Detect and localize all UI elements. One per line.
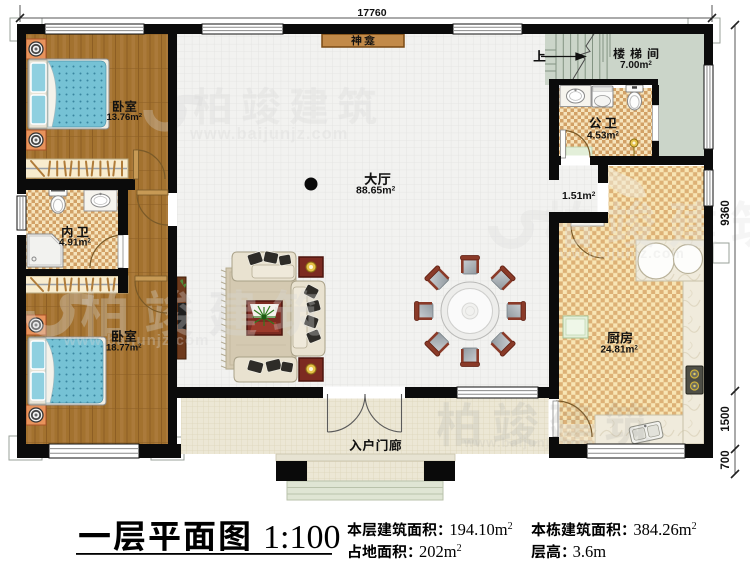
svg-text:194.10m2: 194.10m2 — [449, 520, 512, 539]
svg-text:1:100: 1:100 — [263, 519, 340, 556]
svg-text:www.baijunjz.com: www.baijunjz.com — [547, 245, 685, 261]
svg-text:4.91m2: 4.91m2 — [59, 238, 91, 249]
svg-text:17760: 17760 — [357, 7, 386, 19]
svg-text:9360: 9360 — [720, 200, 732, 226]
svg-text:4.53m2: 4.53m2 — [587, 131, 619, 142]
svg-text:3.6m: 3.6m — [573, 542, 607, 561]
svg-text:18.77m2: 18.77m2 — [106, 343, 142, 354]
svg-text:24.81m2: 24.81m2 — [601, 345, 639, 356]
svg-text:202m2: 202m2 — [419, 542, 462, 561]
svg-text:www.baijunjz.com: www.baijunjz.com — [189, 125, 348, 143]
svg-text:1.51m2: 1.51m2 — [562, 190, 596, 202]
svg-text:88.65m2: 88.65m2 — [356, 185, 396, 197]
svg-text:1500: 1500 — [720, 406, 732, 432]
svg-text:700: 700 — [720, 450, 732, 469]
svg-text:384.26m2: 384.26m2 — [633, 520, 696, 539]
svg-text:7.00m2: 7.00m2 — [620, 60, 652, 71]
svg-text:13.76m2: 13.76m2 — [107, 112, 143, 123]
